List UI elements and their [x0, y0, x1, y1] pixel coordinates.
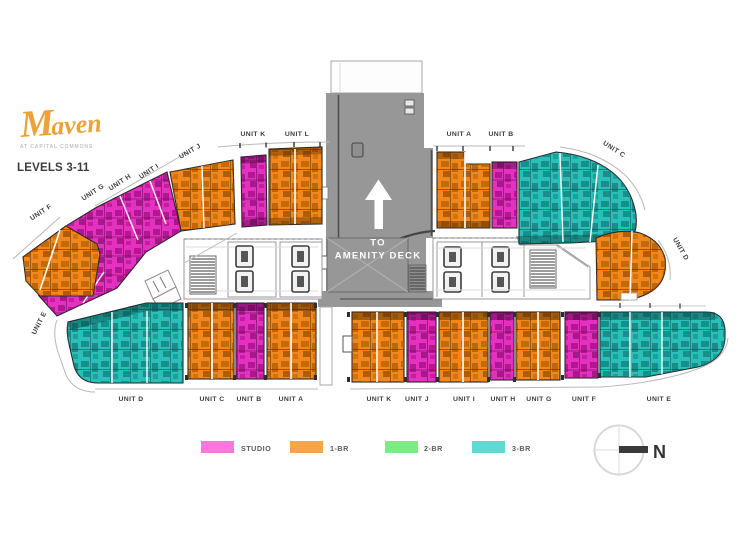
svg-text:UNIT A: UNIT A: [447, 131, 472, 138]
svg-text:2-BR: 2-BR: [424, 444, 443, 453]
svg-text:TO: TO: [370, 238, 386, 249]
svg-text:N: N: [653, 442, 666, 462]
svg-text:UNIT G: UNIT G: [526, 396, 551, 403]
svg-text:AMENITY DECK: AMENITY DECK: [335, 251, 422, 262]
svg-text:LEVELS 3-11: LEVELS 3-11: [17, 162, 90, 174]
svg-text:UNIT C: UNIT C: [199, 396, 224, 403]
svg-text:UNIT A: UNIT A: [279, 396, 304, 403]
svg-text:3-BR: 3-BR: [512, 444, 531, 453]
svg-text:UNIT J: UNIT J: [405, 396, 429, 403]
svg-text:STUDIO: STUDIO: [241, 444, 271, 453]
svg-text:UNIT I: UNIT I: [453, 396, 475, 403]
svg-text:UNIT E: UNIT E: [647, 396, 672, 403]
svg-text:1-BR: 1-BR: [330, 444, 349, 453]
svg-text:UNIT K: UNIT K: [240, 131, 265, 138]
svg-text:AT CAPITAL COMMONS: AT CAPITAL COMMONS: [20, 144, 93, 150]
svg-text:UNIT B: UNIT B: [236, 396, 261, 403]
svg-text:UNIT H: UNIT H: [490, 396, 515, 403]
svg-text:UNIT L: UNIT L: [285, 131, 309, 138]
svg-text:UNIT F: UNIT F: [572, 396, 596, 403]
svg-text:UNIT K: UNIT K: [366, 396, 391, 403]
svg-text:UNIT D: UNIT D: [118, 396, 143, 403]
svg-text:UNIT B: UNIT B: [488, 131, 513, 138]
